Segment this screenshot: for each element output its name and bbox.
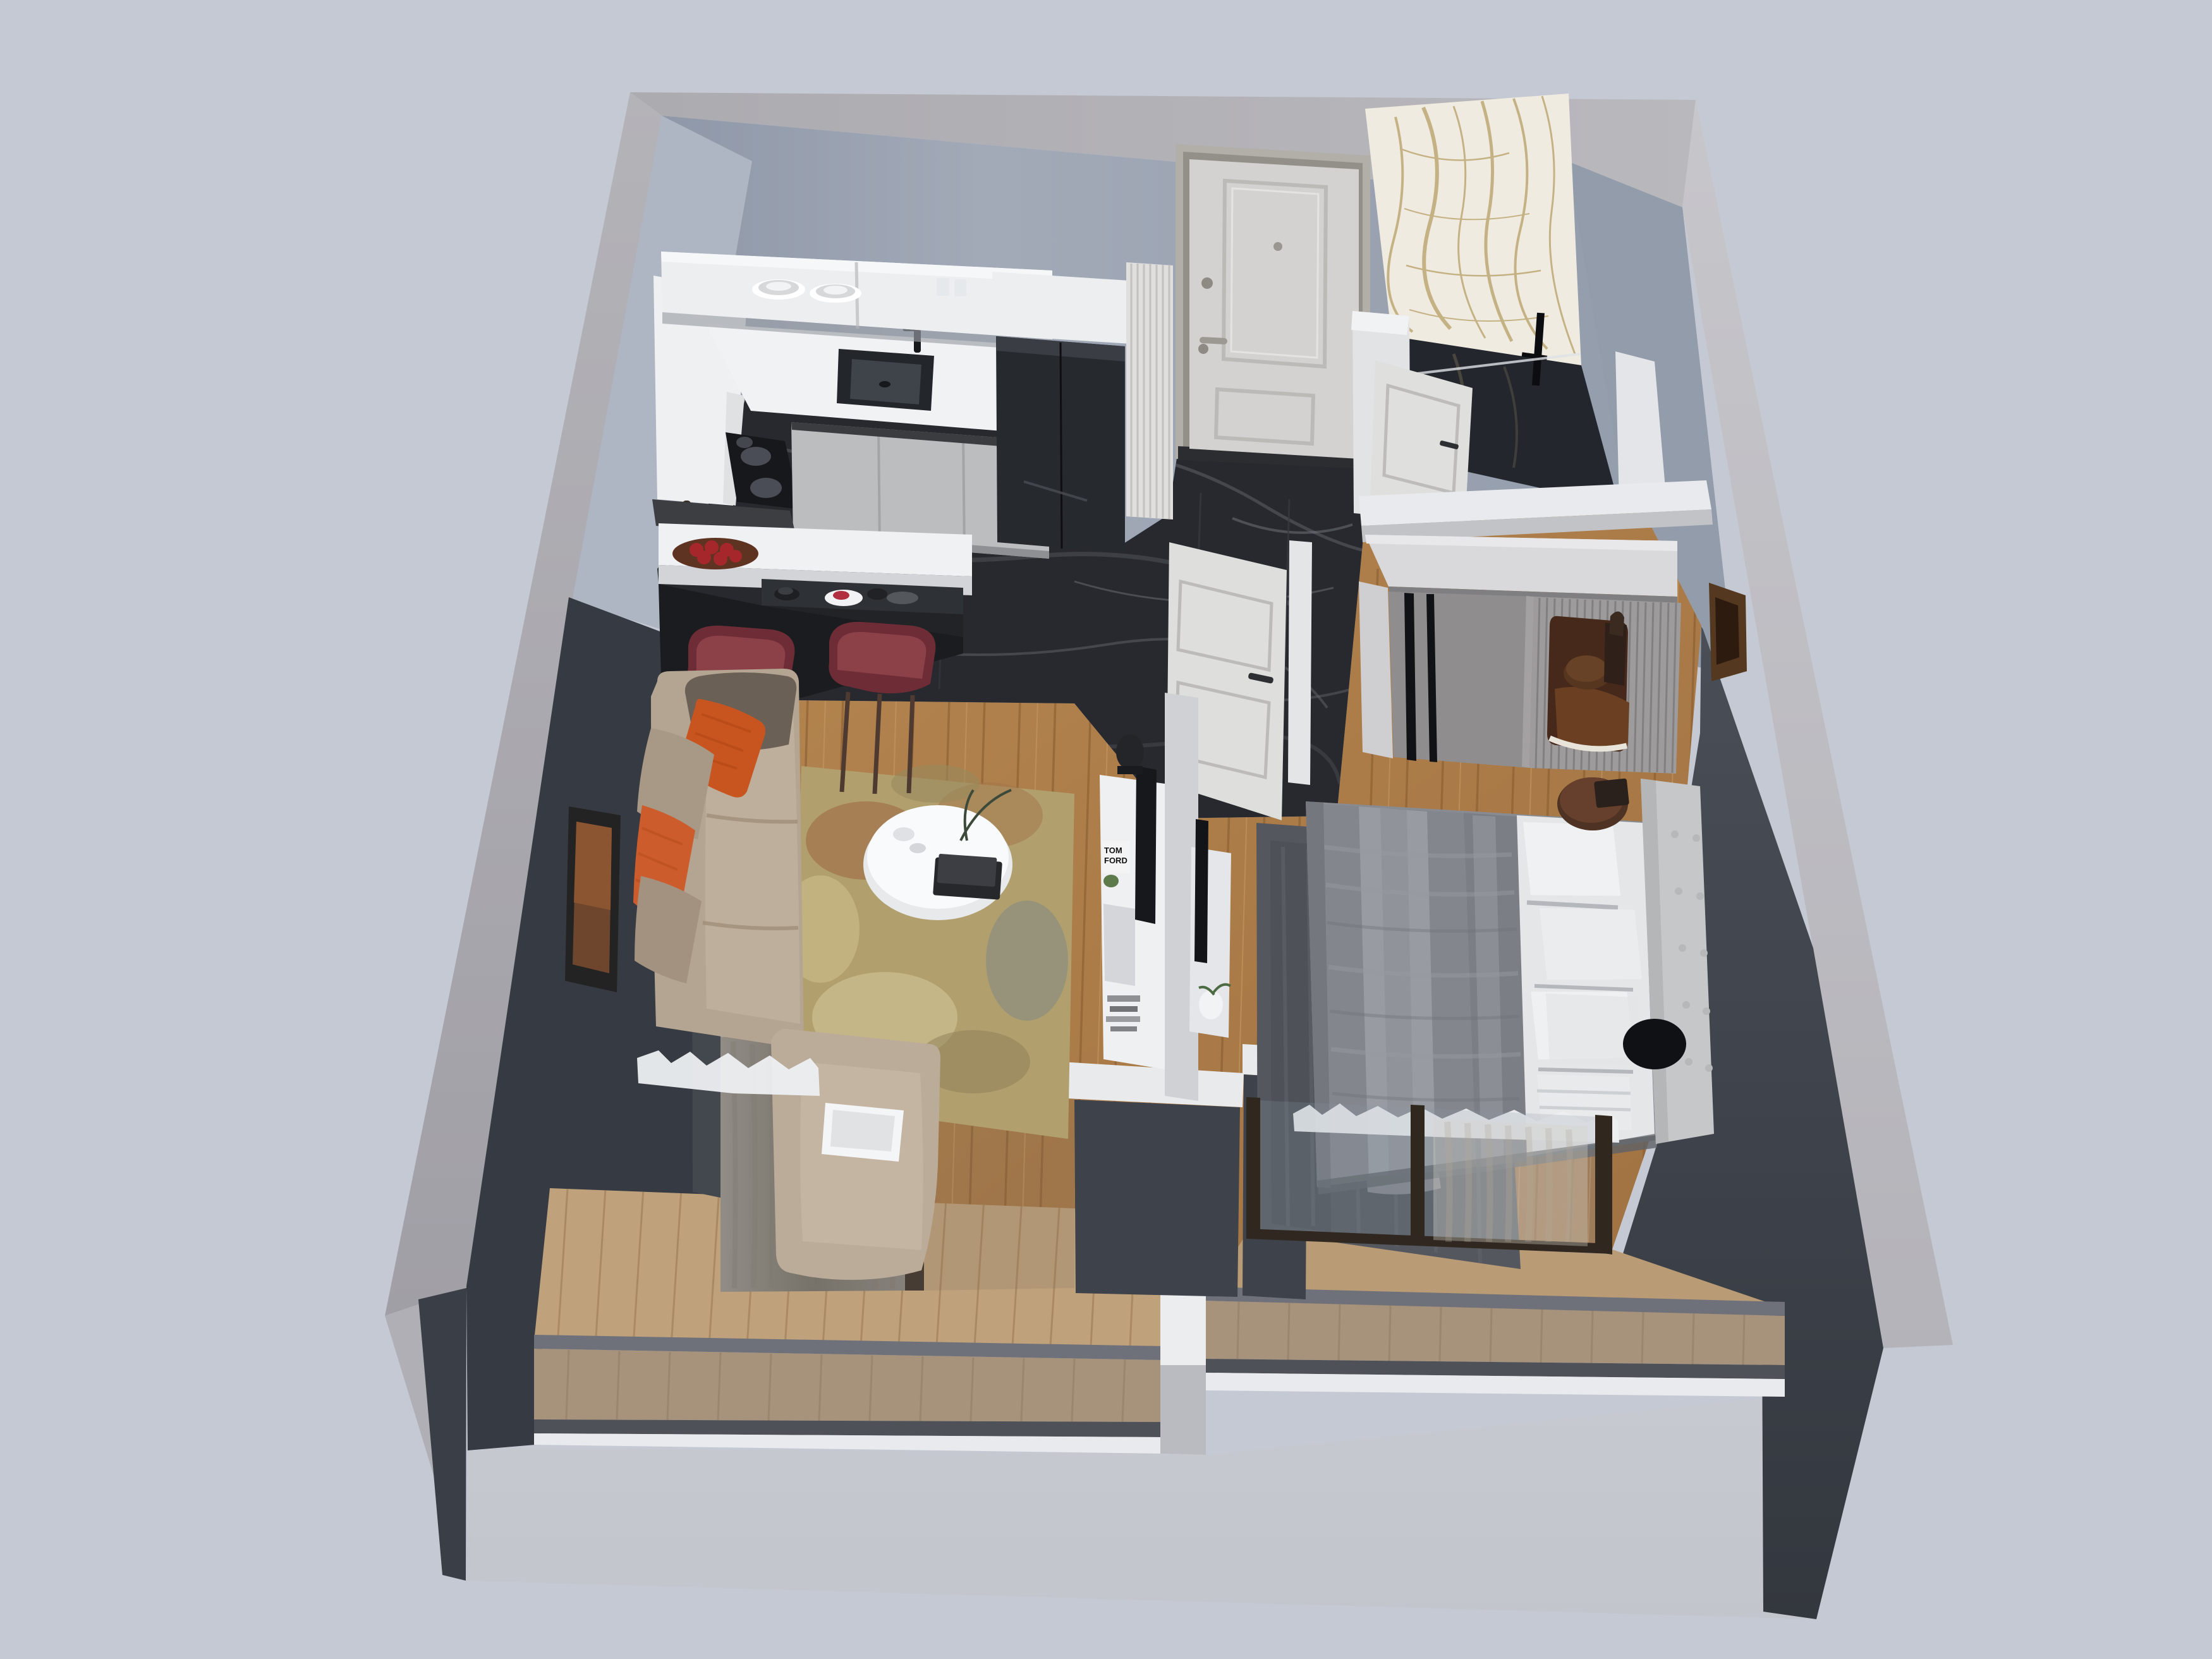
svg-text:TOM: TOM bbox=[1104, 846, 1122, 855]
svg-text:FORD: FORD bbox=[1104, 856, 1127, 865]
